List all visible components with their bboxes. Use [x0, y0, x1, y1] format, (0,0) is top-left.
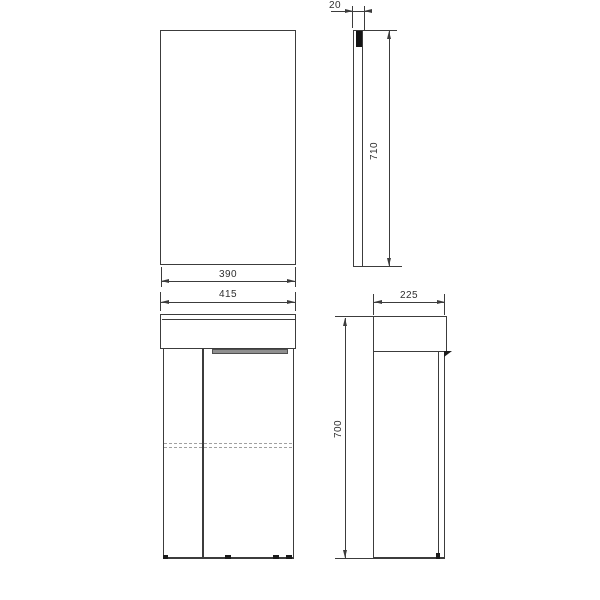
hidden-shelf-line [164, 447, 292, 448]
mirror-front-outline [160, 30, 296, 265]
handle-profile-wedge [444, 351, 452, 357]
mirror-glass-edge [356, 31, 362, 47]
basin-rim-line [162, 319, 295, 320]
cabinet-foot-mark [286, 555, 292, 559]
dimension-label: 700 [319, 409, 359, 449]
arrowhead-left [374, 300, 382, 304]
cabinet-foot-mark [163, 555, 168, 559]
extension-line [335, 316, 373, 317]
cabinet-body-side-outline [373, 351, 445, 559]
extension-line [373, 294, 374, 315]
washbasin-top-side-outline [373, 316, 447, 352]
dimension-line [374, 302, 445, 303]
extension-line [295, 292, 296, 311]
arrowhead-up [387, 31, 391, 39]
cabinet-foot-mark [436, 553, 440, 559]
dimension-line [161, 281, 295, 282]
door-handle-recess [212, 349, 288, 354]
extension-line [355, 266, 402, 267]
extension-line [161, 267, 162, 287]
arrowhead-up [343, 318, 347, 326]
dimension-label: 710 [355, 131, 395, 171]
dimension-label: 225 [387, 291, 431, 301]
arrowhead-down [343, 550, 347, 558]
arrowhead-left [364, 9, 372, 13]
cabinet-body-outline [163, 348, 294, 559]
door-divider-line [202, 348, 204, 559]
extension-line [364, 6, 365, 30]
door-panel-line [438, 352, 439, 559]
arrowhead-left [161, 279, 169, 283]
arrowhead-left [161, 300, 169, 304]
extension-line [352, 6, 353, 28]
arrowhead-right [287, 300, 295, 304]
dimension-line [161, 302, 295, 303]
cabinet-foot-mark [273, 555, 279, 559]
dimension-label: 415 [205, 290, 251, 300]
cabinet-foot-mark [225, 555, 231, 559]
dimension-label: 390 [205, 270, 251, 280]
extension-line [444, 294, 445, 315]
hidden-shelf-line [164, 443, 292, 444]
extension-line [335, 558, 373, 559]
arrowhead-down [387, 258, 391, 266]
arrowhead-right [437, 300, 445, 304]
extension-line [295, 267, 296, 287]
arrowhead-right [287, 279, 295, 283]
technical-drawing-canvas: 390 415 20 [0, 0, 600, 600]
extension-line [363, 30, 397, 31]
